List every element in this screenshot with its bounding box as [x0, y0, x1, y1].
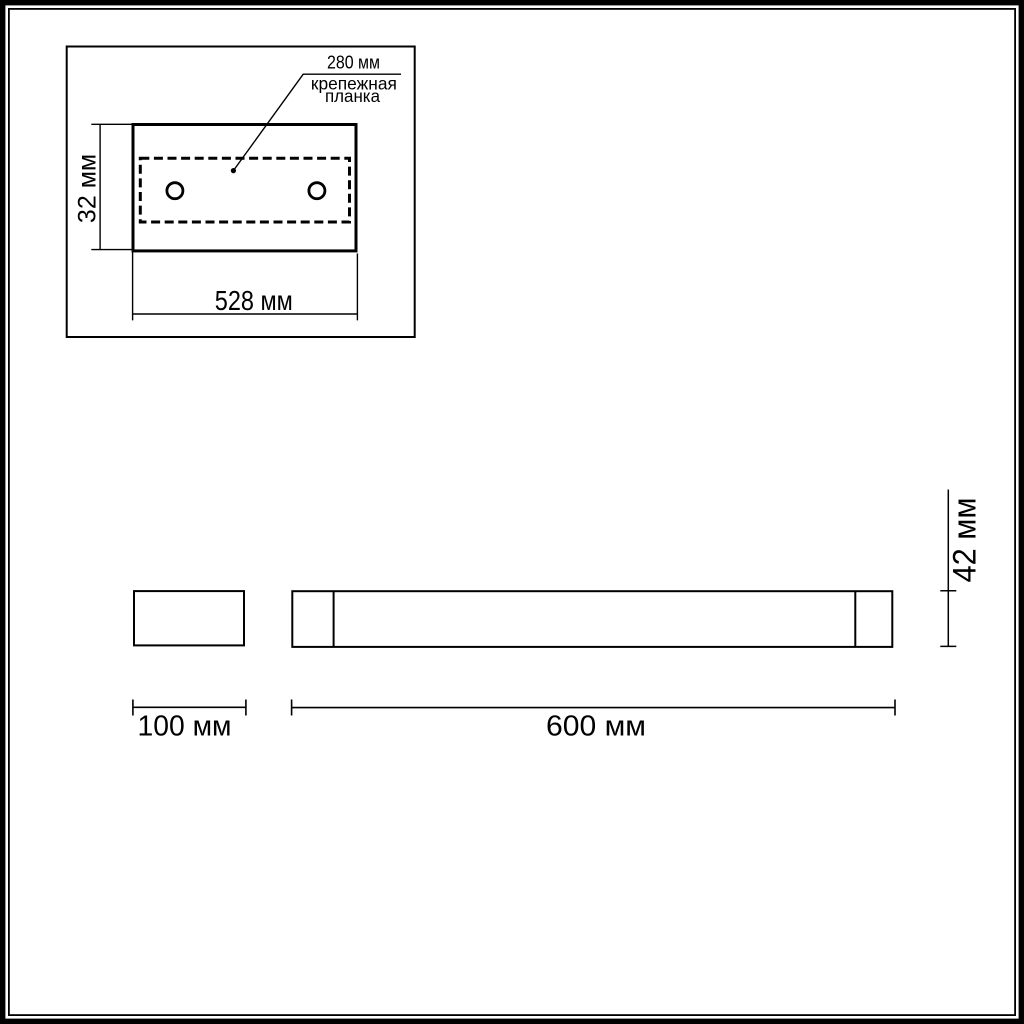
svg-text:32 мм: 32 мм [74, 154, 102, 223]
svg-text:280 мм: 280 мм [327, 53, 380, 73]
svg-text:528 мм: 528 мм [215, 285, 293, 316]
svg-text:100 мм: 100 мм [138, 710, 232, 742]
svg-text:планка: планка [325, 86, 380, 106]
svg-text:42 мм: 42 мм [946, 498, 982, 583]
svg-text:600 мм: 600 мм [546, 710, 646, 742]
